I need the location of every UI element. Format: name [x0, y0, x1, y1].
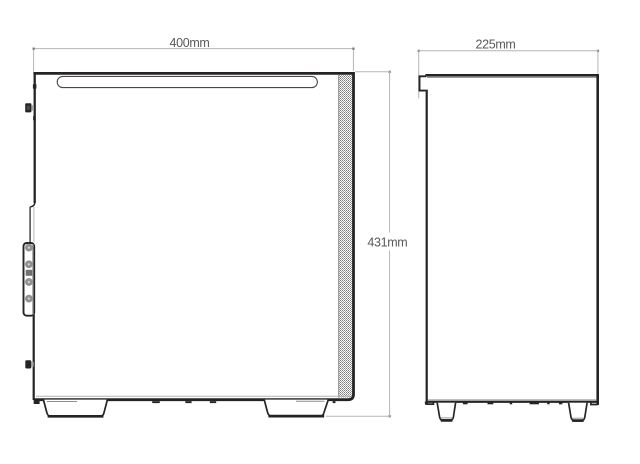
svg-text:400mm: 400mm [170, 36, 210, 50]
svg-text:225mm: 225mm [476, 38, 516, 52]
svg-text:431mm: 431mm [367, 236, 407, 250]
